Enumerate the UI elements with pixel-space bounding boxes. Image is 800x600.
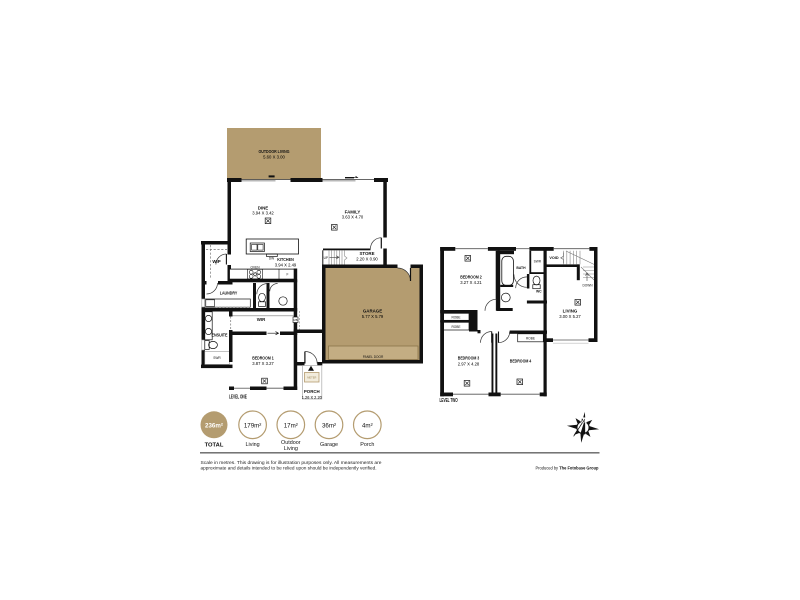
svg-text:LIVING: LIVING — [563, 309, 578, 314]
svg-text:VOID: VOID — [549, 256, 559, 260]
svg-text:UP: UP — [324, 256, 328, 260]
svg-text:3.63 X 4.70: 3.63 X 4.70 — [342, 215, 364, 220]
svg-text:DW: DW — [269, 256, 274, 260]
svg-text:Outdoor: Outdoor — [281, 440, 301, 446]
svg-text:5.60 X 3.00: 5.60 X 3.00 — [263, 154, 285, 159]
svg-text:LAUNDRY: LAUNDRY — [220, 291, 238, 296]
svg-text:OVEN: OVEN — [250, 265, 260, 269]
svg-text:3.27 X 4.21: 3.27 X 4.21 — [460, 280, 482, 285]
svg-text:Living: Living — [246, 442, 260, 448]
svg-text:4m²: 4m² — [362, 422, 373, 429]
svg-text:TOTAL: TOTAL — [205, 443, 224, 449]
svg-text:ROBE: ROBE — [526, 337, 535, 341]
svg-text:Garage: Garage — [320, 442, 338, 448]
svg-text:KITCHEN: KITCHEN — [277, 257, 294, 262]
svg-text:LEVEL ONE: LEVEL ONE — [229, 395, 247, 401]
svg-text:BEDROOM 1: BEDROOM 1 — [252, 355, 274, 360]
svg-text:Scale in metres. This drawing: Scale in metres. This drawing is for ill… — [201, 460, 382, 465]
svg-text:MB: MB — [294, 318, 298, 322]
svg-text:BEDROOM 4: BEDROOM 4 — [510, 359, 532, 364]
svg-text:179m²: 179m² — [244, 422, 262, 429]
svg-text:BEDROOM 2: BEDROOM 2 — [460, 275, 482, 280]
svg-text:ROBE: ROBE — [451, 325, 460, 329]
svg-text:WC: WC — [536, 290, 542, 294]
svg-text:17m²: 17m² — [284, 422, 298, 429]
svg-text:3.87 X 3.27: 3.87 X 3.27 — [252, 361, 274, 366]
svg-text:Porch: Porch — [360, 442, 374, 448]
svg-text:ROBE: ROBE — [451, 316, 460, 320]
svg-text:ENSUITE: ENSUITE — [212, 332, 228, 337]
svg-text:Produced by The Fotobase Group: Produced by The Fotobase Group — [536, 466, 599, 471]
svg-text:1.26 X 2.20: 1.26 X 2.20 — [302, 395, 323, 400]
svg-text:METER: METER — [307, 376, 316, 380]
svg-text:2.20 X 0.90: 2.20 X 0.90 — [356, 256, 378, 261]
svg-text:PANEL DOOR: PANEL DOOR — [363, 355, 384, 359]
svg-text:Living: Living — [284, 446, 298, 452]
svg-text:GARAGE: GARAGE — [363, 309, 382, 314]
svg-text:approximate and details intend: approximate and details intended to be r… — [201, 466, 377, 471]
svg-text:BEDROOM 3: BEDROOM 3 — [458, 356, 480, 361]
svg-text:BATH: BATH — [516, 266, 526, 270]
svg-text:3.94 X 3.42: 3.94 X 3.42 — [252, 211, 274, 216]
svg-text:3.00 X 5.27: 3.00 X 5.27 — [559, 314, 581, 319]
svg-text:F: F — [287, 273, 289, 277]
svg-text:SWR: SWR — [534, 260, 542, 264]
svg-text:SWR: SWR — [213, 356, 221, 360]
svg-text:236m²: 236m² — [205, 422, 223, 429]
svg-text:LEVEL TWO: LEVEL TWO — [440, 398, 458, 404]
svg-text:WIR: WIR — [257, 317, 266, 322]
svg-text:OUTDOOR LIVING: OUTDOOR LIVING — [259, 149, 290, 154]
svg-text:5.77 X 5.79: 5.77 X 5.79 — [362, 314, 384, 319]
svg-text:36m²: 36m² — [322, 422, 336, 429]
svg-text:DOWN: DOWN — [582, 284, 593, 288]
svg-text:2.97 X 4.28: 2.97 X 4.28 — [458, 361, 480, 366]
svg-text:3.94 X 2.49: 3.94 X 2.49 — [275, 262, 297, 267]
svg-text:PORCH: PORCH — [304, 389, 320, 394]
